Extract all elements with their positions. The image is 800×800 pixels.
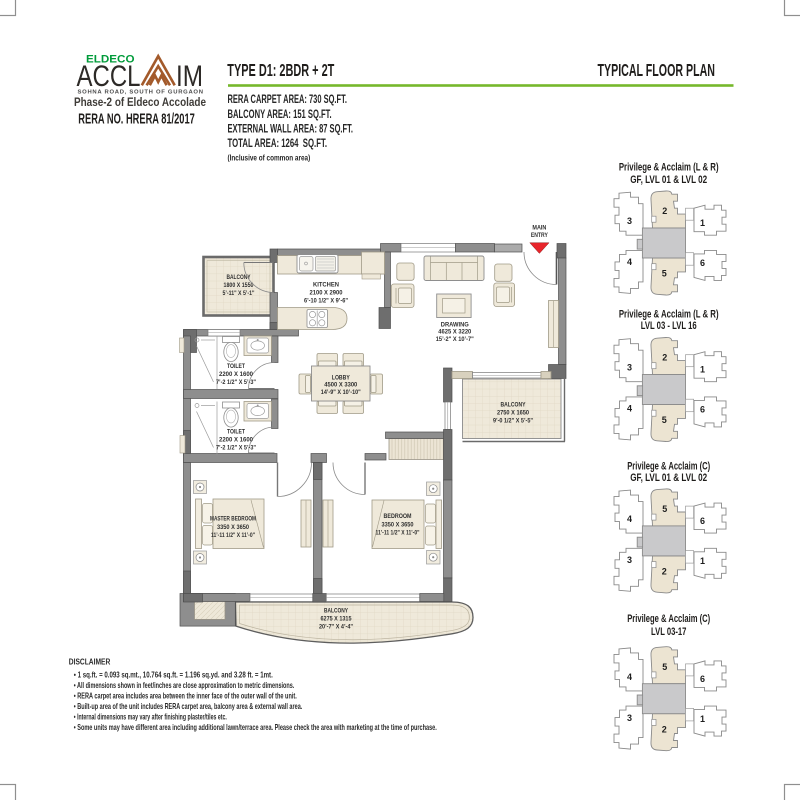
svg-text:GF, LVL 01 & LVL 02: GF, LVL 01 & LVL 02 bbox=[630, 472, 707, 484]
svg-text:6: 6 bbox=[700, 258, 705, 268]
svg-text:6: 6 bbox=[700, 674, 705, 684]
svg-text:2200 X 1600: 2200 X 1600 bbox=[219, 437, 253, 444]
svg-text:1: 1 bbox=[700, 365, 705, 375]
svg-text:6: 6 bbox=[700, 516, 705, 526]
svg-text:11’-11 1/2" X 11’-0": 11’-11 1/2" X 11’-0" bbox=[376, 530, 420, 537]
svg-text:MASTER BEDROOM: MASTER BEDROOM bbox=[210, 516, 256, 523]
svg-text:4: 4 bbox=[627, 672, 632, 682]
svg-text:• 1 sq.ft. = 0.093 sq.mt., 10.: • 1 sq.ft. = 0.093 sq.mt., 10.764 sq.ft.… bbox=[74, 670, 273, 680]
svg-text:4: 4 bbox=[627, 257, 632, 267]
svg-text:11’-11 1/2" X 11’-0": 11’-11 1/2" X 11’-0" bbox=[211, 532, 255, 539]
svg-text:5: 5 bbox=[662, 662, 667, 672]
svg-text:5: 5 bbox=[662, 415, 667, 425]
svg-text:TOILET: TOILET bbox=[227, 363, 246, 370]
svg-text:TYPICAL FLOOR PLAN: TYPICAL FLOOR PLAN bbox=[598, 60, 716, 80]
svg-text:7’-2 1/2" X 5’-3": 7’-2 1/2" X 5’-3" bbox=[216, 445, 256, 452]
svg-text:BALCONY: BALCONY bbox=[324, 608, 348, 615]
svg-text:ACCL: ACCL bbox=[77, 60, 141, 93]
svg-text:4625 X 3220: 4625 X 3220 bbox=[438, 329, 471, 336]
svg-text:3350 X 3650: 3350 X 3650 bbox=[217, 524, 249, 531]
svg-text:Privilege & Acclaim (L & R): Privilege & Acclaim (L & R) bbox=[619, 162, 719, 174]
svg-text:3: 3 bbox=[627, 216, 632, 226]
svg-text:2750 X 1650: 2750 X 1650 bbox=[497, 410, 529, 417]
svg-text:TOTAL AREA: 1264 SQ.FT.: TOTAL AREA: 1264 SQ.FT. bbox=[228, 137, 328, 150]
svg-text:GF, LVL 01 & LVL 02: GF, LVL 01 & LVL 02 bbox=[630, 174, 707, 186]
svg-text:• Internal dimensions may vary: • Internal dimensions may vary after fin… bbox=[74, 712, 227, 722]
svg-text:ENTRY: ENTRY bbox=[531, 232, 548, 239]
svg-text:LOBBY: LOBBY bbox=[332, 375, 350, 382]
svg-text:5’-11" X 5’-1": 5’-11" X 5’-1" bbox=[223, 290, 255, 297]
svg-text:KITCHEN: KITCHEN bbox=[313, 282, 339, 289]
svg-text:9’-0 1/2" X 5’-5": 9’-0 1/2" X 5’-5" bbox=[493, 418, 533, 425]
svg-text:4500 X 3300: 4500 X 3300 bbox=[324, 382, 357, 389]
svg-text:Privilege & Acclaim (L & R): Privilege & Acclaim (L & R) bbox=[619, 309, 719, 321]
svg-text:2: 2 bbox=[662, 353, 667, 363]
svg-text:3350 X 3650: 3350 X 3650 bbox=[382, 521, 414, 528]
svg-text:Privilege & Acclaim (C): Privilege & Acclaim (C) bbox=[627, 613, 710, 625]
svg-text:7’-2 1/2" X 5’-3": 7’-2 1/2" X 5’-3" bbox=[216, 379, 256, 386]
svg-text:• RERA carpet area includes ar: • RERA carpet area includes area between… bbox=[74, 691, 297, 701]
svg-text:2200 X 1600: 2200 X 1600 bbox=[219, 371, 253, 378]
svg-text:4: 4 bbox=[627, 514, 632, 524]
svg-text:BEDROOM: BEDROOM bbox=[384, 513, 412, 520]
svg-text:BALCONY: BALCONY bbox=[227, 274, 251, 281]
svg-text:2: 2 bbox=[662, 724, 667, 734]
svg-text:2100 X 2900: 2100 X 2900 bbox=[310, 290, 343, 297]
svg-text:3: 3 bbox=[627, 363, 632, 373]
svg-text:5: 5 bbox=[662, 504, 667, 514]
svg-text:20’-7" X 4’-4": 20’-7" X 4’-4" bbox=[319, 624, 353, 631]
svg-text:2: 2 bbox=[662, 206, 667, 216]
svg-text:6275 X 1315: 6275 X 1315 bbox=[321, 616, 352, 623]
svg-text:RERA CARPET AREA: 730 SQ.FT.: RERA CARPET AREA: 730 SQ.FT. bbox=[228, 93, 347, 106]
svg-text:1800 X 1550: 1800 X 1550 bbox=[224, 282, 254, 289]
svg-text:Phase-2 of Eldeco Accolade: Phase-2 of Eldeco Accolade bbox=[74, 95, 206, 109]
svg-text:4: 4 bbox=[627, 404, 632, 414]
svg-text:(Inclusive of common area): (Inclusive of common area) bbox=[228, 153, 311, 162]
svg-text:MAIN: MAIN bbox=[532, 225, 546, 232]
svg-text:RERA NO. HRERA 81/2017: RERA NO. HRERA 81/2017 bbox=[78, 112, 195, 128]
svg-text:EXTERNAL WALL AREA: 87 SQ.FT.: EXTERNAL WALL AREA: 87 SQ.FT. bbox=[228, 122, 354, 135]
svg-text:Privilege & Acclaim (C): Privilege & Acclaim (C) bbox=[627, 461, 710, 473]
svg-text:3: 3 bbox=[627, 555, 632, 565]
svg-text:• All dimensions shown in feet: • All dimensions shown in feet/inches ar… bbox=[74, 680, 294, 690]
svg-text:• Some units may have differen: • Some units may have different area inc… bbox=[74, 722, 437, 732]
svg-text:BALCONY AREA: 151 SQ.FT.: BALCONY AREA: 151 SQ.FT. bbox=[228, 108, 332, 121]
svg-text:3: 3 bbox=[627, 713, 632, 723]
svg-text:6’-10 1/2" X 9’-6": 6’-10 1/2" X 9’-6" bbox=[304, 298, 348, 305]
svg-text:TYPE D1: 2BDR + 2T: TYPE D1: 2BDR + 2T bbox=[227, 60, 334, 80]
svg-text:DRAWING: DRAWING bbox=[441, 322, 469, 329]
svg-text:6: 6 bbox=[700, 405, 705, 415]
svg-text:14’-9" X 10’-10": 14’-9" X 10’-10" bbox=[321, 389, 361, 396]
svg-text:1: 1 bbox=[700, 714, 705, 724]
svg-text:2: 2 bbox=[662, 567, 667, 577]
svg-text:1: 1 bbox=[700, 218, 705, 228]
svg-text:LVL 03 - LVL 16: LVL 03 - LVL 16 bbox=[641, 320, 697, 332]
svg-text:BALCONY: BALCONY bbox=[501, 402, 526, 409]
svg-text:TOILET: TOILET bbox=[227, 429, 246, 436]
svg-text:15’-2" X 10’-7": 15’-2" X 10’-7" bbox=[436, 336, 474, 343]
svg-text:LVL 03-17: LVL 03-17 bbox=[651, 626, 686, 638]
svg-text:DISCLAIMER: DISCLAIMER bbox=[69, 656, 111, 666]
svg-text:1: 1 bbox=[700, 556, 705, 566]
svg-text:IM: IM bbox=[176, 60, 203, 93]
svg-text:• Built-up area of the unit in: • Built-up area of the unit includes RER… bbox=[74, 701, 302, 711]
svg-text:5: 5 bbox=[662, 269, 667, 279]
